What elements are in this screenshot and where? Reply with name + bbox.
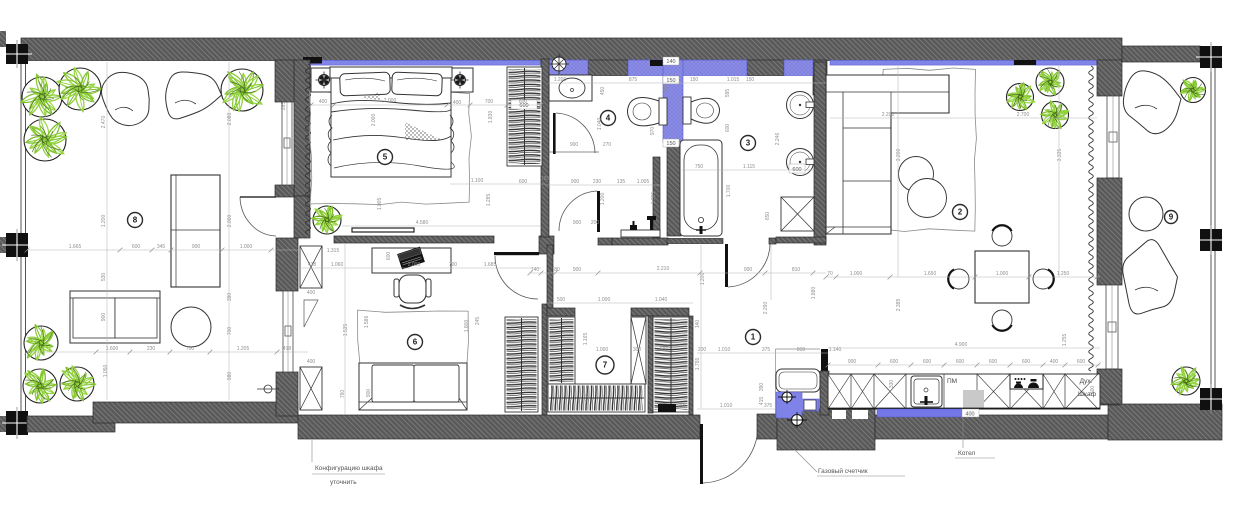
svg-text:900: 900 — [571, 179, 580, 185]
svg-text:1.665: 1.665 — [69, 244, 82, 250]
svg-text:1.000: 1.000 — [598, 297, 611, 303]
svg-text:2.385: 2.385 — [896, 299, 902, 312]
svg-text:Газовый счетчик: Газовый счетчик — [818, 467, 868, 475]
svg-text:9: 9 — [1169, 213, 1174, 222]
svg-text:415: 415 — [759, 397, 765, 406]
svg-text:2.000: 2.000 — [408, 262, 421, 268]
svg-text:900: 900 — [573, 267, 582, 273]
svg-text:200: 200 — [591, 220, 600, 226]
svg-text:265: 265 — [281, 102, 287, 111]
svg-text:980: 980 — [227, 372, 233, 381]
svg-text:900: 900 — [573, 220, 582, 226]
svg-text:2.200: 2.200 — [882, 112, 895, 118]
svg-text:2.290: 2.290 — [763, 302, 769, 315]
svg-text:600: 600 — [519, 179, 528, 185]
svg-text:1.200: 1.200 — [554, 77, 567, 83]
svg-text:2.080: 2.080 — [227, 113, 233, 126]
svg-text:600: 600 — [989, 359, 998, 365]
svg-text:1: 1 — [751, 333, 756, 342]
svg-text:900: 900 — [192, 244, 201, 250]
svg-text:1.600: 1.600 — [106, 346, 119, 352]
svg-text:330: 330 — [889, 380, 895, 389]
svg-text:Конфигурацию шкафа: Конфигурацию шкафа — [315, 465, 383, 472]
svg-text:600: 600 — [1077, 359, 1086, 365]
svg-text:70: 70 — [827, 271, 833, 277]
svg-text:600: 600 — [132, 244, 141, 250]
svg-text:6: 6 — [413, 338, 418, 347]
svg-text:1.700: 1.700 — [726, 185, 732, 198]
svg-text:185: 185 — [541, 176, 550, 182]
svg-text:ПМ: ПМ — [947, 378, 957, 385]
svg-text:400: 400 — [307, 359, 316, 365]
svg-text:418: 418 — [283, 346, 292, 352]
svg-text:1.115: 1.115 — [743, 164, 755, 170]
svg-text:140: 140 — [666, 59, 675, 65]
svg-text:600: 600 — [725, 124, 731, 133]
svg-text:1.165: 1.165 — [583, 333, 589, 346]
svg-text:3: 3 — [746, 139, 751, 148]
svg-text:Дух.: Дух. — [1080, 378, 1093, 385]
svg-text:390: 390 — [759, 383, 765, 392]
svg-text:450: 450 — [600, 87, 606, 96]
svg-text:1.800: 1.800 — [464, 320, 470, 333]
svg-text:900: 900 — [570, 142, 579, 148]
svg-text:1.000: 1.000 — [996, 271, 1009, 277]
svg-text:900: 900 — [366, 389, 372, 398]
svg-text:700: 700 — [449, 262, 458, 268]
svg-text:1.200: 1.200 — [600, 193, 606, 206]
svg-text:4.900: 4.900 — [955, 342, 968, 348]
svg-text:875: 875 — [629, 77, 638, 83]
svg-text:700: 700 — [186, 346, 195, 352]
svg-text:2.000: 2.000 — [227, 215, 233, 228]
svg-text:200: 200 — [698, 347, 707, 353]
svg-text:1.755: 1.755 — [695, 358, 701, 371]
svg-text:230: 230 — [147, 346, 156, 352]
svg-text:810: 810 — [797, 347, 806, 353]
svg-text:1.255: 1.255 — [1062, 334, 1068, 347]
svg-text:1.000: 1.000 — [240, 244, 253, 250]
svg-text:3.200: 3.200 — [896, 149, 902, 162]
svg-text:750: 750 — [695, 164, 704, 170]
svg-text:140: 140 — [695, 320, 701, 329]
svg-text:2: 2 — [958, 208, 963, 217]
svg-text:900: 900 — [848, 359, 857, 365]
svg-text:1.880: 1.880 — [811, 287, 817, 300]
svg-text:1.315: 1.315 — [327, 248, 340, 254]
svg-text:900: 900 — [744, 267, 753, 273]
svg-text:80: 80 — [554, 267, 560, 273]
svg-text:1.015: 1.015 — [727, 77, 740, 83]
svg-text:1.205: 1.205 — [237, 346, 250, 352]
svg-text:600: 600 — [956, 359, 965, 365]
svg-text:2.210: 2.210 — [657, 266, 670, 272]
svg-text:245: 245 — [475, 317, 481, 326]
svg-text:650: 650 — [765, 212, 771, 221]
svg-text:4: 4 — [606, 114, 611, 123]
svg-text:2.246: 2.246 — [775, 133, 781, 146]
svg-text:1.040: 1.040 — [655, 297, 668, 303]
svg-text:1.005: 1.005 — [377, 198, 383, 211]
svg-text:1.200: 1.200 — [101, 215, 107, 228]
svg-text:500: 500 — [660, 347, 669, 353]
svg-text:400: 400 — [965, 412, 974, 418]
svg-text:4.580: 4.580 — [416, 220, 429, 226]
svg-text:600: 600 — [519, 99, 528, 105]
svg-text:375: 375 — [762, 347, 771, 353]
svg-text:1.385: 1.385 — [651, 192, 657, 205]
svg-text:390: 390 — [227, 293, 233, 302]
svg-text:1.050: 1.050 — [103, 365, 109, 378]
svg-text:530: 530 — [101, 273, 107, 282]
svg-text:135: 135 — [617, 179, 626, 185]
svg-text:1.250: 1.250 — [1057, 271, 1070, 277]
svg-text:600: 600 — [1022, 359, 1031, 365]
svg-text:600: 600 — [585, 394, 591, 403]
svg-text:375: 375 — [764, 403, 773, 409]
svg-text:230: 230 — [593, 179, 602, 185]
svg-text:500: 500 — [557, 297, 566, 303]
svg-text:810: 810 — [792, 267, 801, 273]
svg-text:1.040: 1.040 — [597, 118, 603, 131]
svg-text:3.335: 3.335 — [1057, 149, 1063, 162]
svg-text:600: 600 — [923, 359, 932, 365]
svg-text:150: 150 — [746, 77, 755, 83]
svg-text:1.535: 1.535 — [343, 324, 349, 337]
svg-text:Котел: Котел — [958, 450, 976, 457]
svg-text:400: 400 — [307, 290, 316, 296]
svg-text:700: 700 — [485, 99, 494, 105]
svg-text:7: 7 — [603, 361, 608, 370]
svg-text:400: 400 — [453, 100, 462, 106]
svg-text:1.100: 1.100 — [471, 178, 484, 184]
svg-text:400: 400 — [319, 99, 328, 105]
svg-text:2.000: 2.000 — [384, 98, 397, 104]
svg-text:700: 700 — [227, 327, 233, 336]
svg-text:1.586: 1.586 — [364, 316, 370, 329]
svg-text:540: 540 — [664, 84, 670, 93]
svg-text:1.000: 1.000 — [596, 347, 609, 353]
svg-text:600: 600 — [386, 252, 392, 261]
svg-text:2.470: 2.470 — [101, 116, 107, 129]
svg-text:150: 150 — [666, 141, 675, 147]
svg-text:5: 5 — [383, 153, 388, 162]
svg-text:400: 400 — [1050, 359, 1059, 365]
svg-text:1.685: 1.685 — [484, 262, 497, 268]
svg-text:2.700: 2.700 — [1017, 112, 1030, 118]
svg-text:300: 300 — [633, 347, 642, 353]
svg-text:600: 600 — [890, 359, 899, 365]
svg-text:150: 150 — [690, 77, 699, 83]
svg-text:345: 345 — [157, 244, 166, 250]
svg-text:1.005: 1.005 — [637, 179, 650, 185]
svg-text:1.000: 1.000 — [850, 271, 863, 277]
svg-text:600: 600 — [1090, 386, 1096, 395]
svg-text:1.650: 1.650 — [924, 271, 937, 277]
svg-text:2.000: 2.000 — [371, 114, 377, 127]
svg-text:200: 200 — [677, 404, 686, 410]
svg-text:1.010: 1.010 — [720, 403, 733, 409]
svg-text:1.830: 1.830 — [488, 111, 494, 124]
svg-text:418: 418 — [308, 262, 317, 268]
svg-text:8: 8 — [133, 216, 138, 225]
svg-text:270: 270 — [603, 142, 612, 148]
svg-text:уточнить: уточнить — [330, 479, 357, 486]
svg-text:1.060: 1.060 — [331, 262, 344, 268]
svg-text:1.010: 1.010 — [718, 347, 731, 353]
svg-text:595: 595 — [725, 89, 731, 98]
svg-text:970: 970 — [650, 127, 656, 136]
svg-text:1.285: 1.285 — [486, 194, 492, 207]
svg-text:900: 900 — [101, 313, 107, 322]
